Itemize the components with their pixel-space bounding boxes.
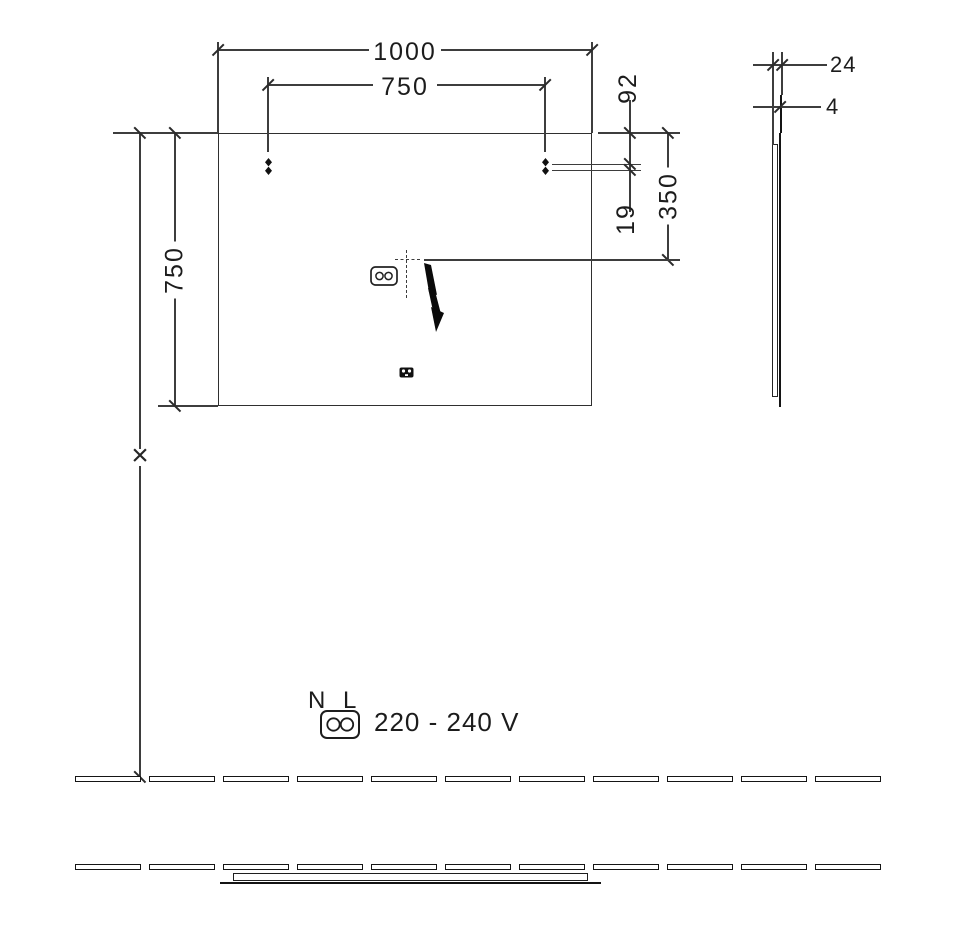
side-view-glass-edge — [780, 95, 782, 133]
wall-segment — [75, 864, 141, 870]
touch-switch-icon — [399, 367, 414, 378]
dim-label-width: 1000 — [369, 40, 441, 64]
mounting-point-icon — [541, 158, 550, 175]
extension-line — [113, 132, 218, 133]
wall-section-row — [75, 864, 881, 870]
wall-segment — [223, 864, 289, 870]
dim-label-glass: 4 — [826, 95, 846, 119]
dim-line-top-to-mount — [629, 100, 630, 212]
extension-line — [217, 42, 218, 133]
dim-line-install-height — [139, 133, 140, 449]
power-socket-icon — [370, 266, 398, 286]
dim-label-top-to-connection: 350 — [657, 168, 681, 225]
voltage-label: 220 - 240 V — [374, 707, 519, 737]
wall-segment — [593, 776, 659, 782]
dim-label-height: 750 — [163, 242, 187, 299]
extension-line — [781, 52, 782, 95]
wall-segment — [149, 776, 215, 782]
centerline-horizontal — [395, 259, 420, 260]
dim-label-mount-gap: 19 — [614, 197, 638, 241]
side-view-glass — [779, 133, 781, 407]
wall-segment — [223, 776, 289, 782]
wall-segment — [519, 776, 585, 782]
dim-label-depth: 24 — [830, 53, 864, 77]
wall-segment — [741, 776, 807, 782]
dim-label-mount-span: 750 — [373, 75, 437, 99]
wall-segment — [593, 864, 659, 870]
centerline-vertical — [406, 250, 407, 298]
mounting-point-icon — [264, 158, 273, 175]
wall-segment — [297, 776, 363, 782]
dim-line-glass — [753, 106, 821, 107]
wall-segment — [445, 864, 511, 870]
wall-section-row — [75, 776, 881, 782]
leader-line — [552, 164, 641, 165]
plan-view-glass — [220, 882, 601, 884]
wall-segment — [371, 864, 437, 870]
wall-segment — [149, 864, 215, 870]
wall-segment — [815, 776, 881, 782]
extension-line — [544, 77, 545, 152]
leader-line — [552, 170, 641, 171]
wall-segment — [667, 864, 733, 870]
wall-segment — [445, 776, 511, 782]
installation-drawing: 1000 750 92 19 350 — [0, 0, 959, 936]
variable-height-x-mark: × — [124, 441, 156, 471]
dim-line-install-height — [139, 466, 140, 777]
wall-segment — [519, 864, 585, 870]
wall-segment — [371, 776, 437, 782]
side-view-backing — [772, 144, 779, 397]
extension-line — [158, 405, 218, 406]
lightning-bolt-icon — [416, 262, 446, 332]
dim-label-top-to-mount: 92 — [616, 66, 640, 110]
extension-line — [591, 42, 592, 133]
wall-segment — [741, 864, 807, 870]
mirror-outline — [218, 133, 592, 406]
leader-line-connection — [424, 259, 680, 260]
wall-segment — [75, 776, 141, 782]
wall-segment — [297, 864, 363, 870]
extension-line — [267, 77, 268, 152]
dim-line-depth — [753, 64, 827, 65]
wall-segment — [667, 776, 733, 782]
power-socket-icon — [320, 710, 362, 740]
plan-view-backing — [233, 873, 588, 881]
wall-segment — [815, 864, 881, 870]
